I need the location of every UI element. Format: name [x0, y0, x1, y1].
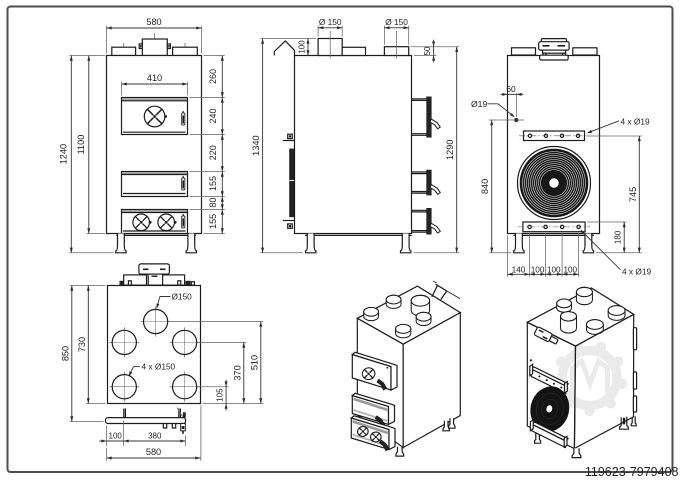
svg-text:220: 220 — [208, 145, 218, 160]
svg-text:Ø 150: Ø 150 — [319, 17, 342, 27]
svg-text:260: 260 — [208, 69, 218, 84]
svg-text:100: 100 — [563, 266, 577, 275]
svg-text:580: 580 — [146, 447, 161, 457]
svg-text:1100: 1100 — [76, 135, 86, 155]
svg-text:100: 100 — [297, 40, 306, 54]
svg-text:180: 180 — [614, 230, 623, 244]
svg-text:100: 100 — [547, 266, 561, 275]
svg-text:140: 140 — [512, 266, 526, 275]
svg-text:410: 410 — [147, 73, 162, 83]
svg-text:60: 60 — [506, 84, 516, 94]
svg-text:4 x Ø19: 4 x Ø19 — [621, 116, 650, 126]
svg-text:100: 100 — [109, 432, 123, 441]
svg-text:850: 850 — [60, 346, 70, 361]
svg-text:50: 50 — [423, 46, 432, 55]
svg-text:Ø150: Ø150 — [172, 291, 193, 301]
svg-text:1290: 1290 — [445, 140, 455, 160]
svg-text:1340: 1340 — [251, 135, 261, 155]
svg-text:840: 840 — [480, 179, 490, 194]
svg-text:80: 80 — [208, 198, 218, 208]
svg-text:1240: 1240 — [59, 144, 69, 164]
svg-text:380: 380 — [148, 432, 162, 441]
svg-text:105: 105 — [216, 388, 225, 402]
svg-text:Ø19: Ø19 — [471, 99, 487, 109]
svg-text:370: 370 — [232, 365, 242, 380]
svg-text:119623-7979408: 119623-7979408 — [585, 465, 679, 479]
svg-text:745: 745 — [628, 187, 638, 202]
svg-text:Ø 150: Ø 150 — [385, 17, 408, 27]
svg-text:730: 730 — [77, 337, 87, 352]
svg-text:155: 155 — [208, 214, 218, 229]
svg-text:4 x Ø150: 4 x Ø150 — [142, 362, 176, 372]
svg-text:510: 510 — [249, 355, 259, 370]
svg-text:580: 580 — [146, 17, 161, 27]
svg-text:240: 240 — [208, 108, 218, 123]
svg-text:155: 155 — [208, 176, 218, 191]
svg-text:4 x Ø19: 4 x Ø19 — [622, 266, 651, 276]
svg-text:100: 100 — [531, 266, 545, 275]
